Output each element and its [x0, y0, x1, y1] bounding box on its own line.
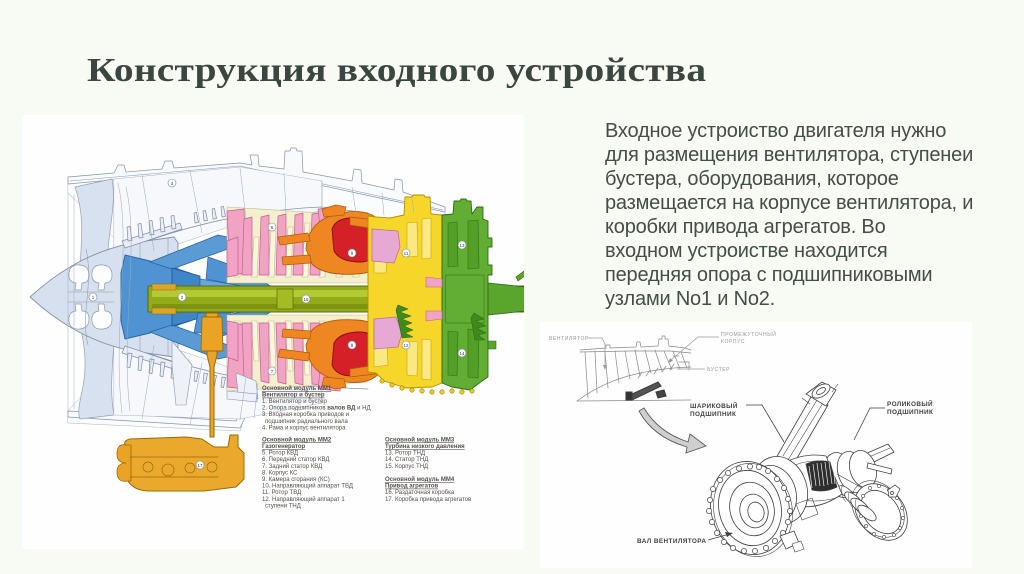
svg-text:ПОДШИПНИК: ПОДШИПНИК	[690, 411, 736, 418]
svg-text:Турбина низкого давления: Турбина низкого давления	[385, 443, 465, 450]
svg-text:6. Передний статор КВД: 6. Передний статор КВД	[262, 456, 329, 463]
svg-text:ВАЛ ВЕНТИЛЯТОРА: ВАЛ ВЕНТИЛЯТОРА	[637, 538, 706, 545]
svg-text:ПОДШИПНИК: ПОДШИПНИК	[887, 409, 933, 416]
svg-text:15: 15	[303, 297, 309, 302]
svg-text:Привод агрегатов: Привод агрегатов	[385, 484, 439, 490]
svg-text:12. Направляющий аппарат 1: 12. Направляющий аппарат 1	[262, 496, 345, 503]
svg-text:Основной модуль ММ3: Основной модуль ММ3	[385, 436, 455, 443]
svg-text:4. Рама и корпус вентилятора: 4. Рама и корпус вентилятора	[262, 425, 346, 431]
svg-text:Основной модуль ММ4: Основной модуль ММ4	[385, 476, 455, 483]
svg-text:2. Опора подшипников валов ВД: 2. Опора подшипников валов ВД и НД	[262, 406, 371, 412]
svg-text:13. Ротор ТНД: 13. Ротор ТНД	[385, 451, 425, 457]
svg-text:ПРОМЕЖУТОЧНЫЙ: ПРОМЕЖУТОЧНЫЙ	[721, 330, 776, 338]
svg-text:подшипник радиального вала: подшипник радиального вала	[265, 419, 348, 425]
svg-text:17: 17	[197, 463, 203, 468]
svg-text:11. Ротор ТВД: 11. Ротор ТВД	[262, 490, 301, 496]
svg-text:Вентилятор и бустер: Вентилятор и бустер	[262, 392, 325, 399]
svg-text:1. Вентилятор и бустер: 1. Вентилятор и бустер	[262, 399, 327, 405]
svg-text:БУСТЕР: БУСТЕР	[707, 367, 730, 373]
svg-text:11: 11	[404, 251, 409, 256]
svg-text:8. Корпус КС: 8. Корпус КС	[262, 470, 298, 476]
svg-text:ВЕНТИЛЯТОР: ВЕНТИЛЯТОР	[549, 336, 589, 342]
svg-text:РОЛИКОВЫЙ: РОЛИКОВЫЙ	[887, 399, 933, 408]
svg-text:17. Коробка привода агрегатов: 17. Коробка привода агрегатов	[385, 497, 471, 503]
svg-text:7. Задний статор КВД: 7. Задний статор КВД	[262, 463, 322, 470]
svg-text:ступени ТНД: ступени ТНД	[265, 503, 301, 509]
svg-text:КОРПУС: КОРПУС	[721, 339, 745, 345]
svg-text:13: 13	[459, 243, 465, 248]
svg-text:Основной модуль ММ1: Основной модуль ММ1	[262, 385, 332, 392]
svg-text:15. Корпус ТНД: 15. Корпус ТНД	[385, 464, 428, 470]
svg-text:14: 14	[459, 351, 465, 356]
svg-text:14. Статор ТНД: 14. Статор ТНД	[385, 457, 428, 463]
svg-text:Основной модуль ММ2: Основной модуль ММ2	[262, 436, 332, 443]
svg-text:3. Входная коробка приводов и: 3. Входная коробка приводов и	[262, 412, 349, 418]
svg-text:9. Камера сгорания (КС): 9. Камера сгорания (КС)	[262, 477, 330, 483]
svg-text:10. Направляющий аппарат ТВД: 10. Направляющий аппарат ТВД	[262, 483, 353, 490]
svg-text:ШАРИКОВЫЙ: ШАРИКОВЫЙ	[690, 401, 738, 410]
svg-text:Газогенератор: Газогенератор	[262, 444, 306, 450]
svg-text:5. Ротор КВД: 5. Ротор КВД	[262, 451, 298, 457]
svg-text:12: 12	[403, 343, 409, 348]
svg-text:16. Раздаточная коробка: 16. Раздаточная коробка	[385, 490, 455, 496]
